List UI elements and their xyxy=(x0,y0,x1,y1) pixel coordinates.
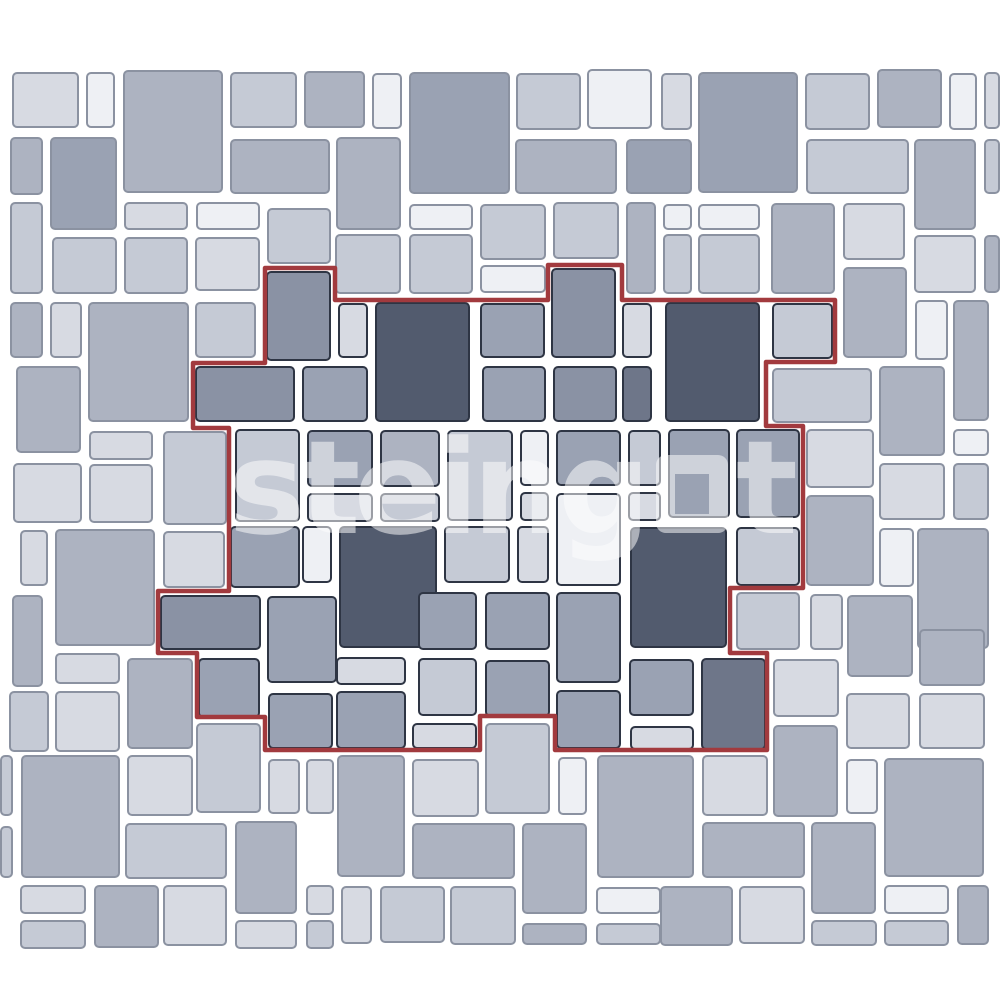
paver-tile xyxy=(338,303,368,358)
paver-tile xyxy=(846,759,878,814)
paver-tile xyxy=(622,366,652,422)
paver-tile xyxy=(163,431,227,525)
paver-tile xyxy=(372,73,402,129)
paver-tile xyxy=(160,595,261,650)
paver-tile xyxy=(50,302,82,358)
paver-tile xyxy=(553,202,619,259)
paver-tile xyxy=(843,267,907,358)
paver-tile xyxy=(124,202,188,230)
paver-tile xyxy=(884,885,949,914)
paver-tile xyxy=(626,202,656,294)
paver-tile xyxy=(949,73,977,130)
paver-tile xyxy=(806,495,874,586)
paver-tile xyxy=(773,659,839,717)
paver-tile xyxy=(94,885,159,948)
paver-tile xyxy=(195,237,260,291)
paver-tile xyxy=(736,527,800,586)
paver-tile xyxy=(418,658,477,716)
paver-tile xyxy=(447,430,513,521)
paver-tile xyxy=(235,821,297,914)
paver-tile xyxy=(485,592,550,650)
paver-tile xyxy=(302,526,332,583)
paver-tile xyxy=(772,368,872,423)
paver-tile xyxy=(163,531,225,588)
paver-tile xyxy=(50,137,117,230)
paver-tile xyxy=(884,920,949,946)
paver-tile xyxy=(698,234,760,294)
paver-tile xyxy=(198,658,260,718)
paver-tile xyxy=(268,759,300,814)
paver-tile xyxy=(235,920,297,949)
paver-tile xyxy=(306,920,334,949)
paver-tile xyxy=(482,366,546,422)
paver-tile xyxy=(412,823,515,879)
paver-tile xyxy=(127,658,193,749)
paver-tile xyxy=(879,528,914,587)
paver-tile xyxy=(409,234,473,294)
paver-tile xyxy=(20,530,48,586)
paver-tile xyxy=(336,691,406,749)
paver-tile xyxy=(266,271,331,361)
paver-tile xyxy=(811,920,877,946)
paver-tile xyxy=(556,592,621,683)
paver-tile xyxy=(409,204,473,230)
paver-tile xyxy=(663,234,692,294)
paver-tile xyxy=(12,72,79,128)
paver-tile xyxy=(739,886,805,944)
paver-tile xyxy=(10,137,43,195)
paver-tile xyxy=(553,366,617,422)
paver-tile xyxy=(306,759,334,814)
paver-tile xyxy=(702,822,805,878)
paver-tile xyxy=(953,429,989,456)
paver-tile xyxy=(984,139,1000,194)
paver-tile xyxy=(701,658,766,750)
paver-tile xyxy=(86,72,115,128)
paver-tile xyxy=(630,527,727,648)
paver-tile xyxy=(630,726,694,750)
paver-tile xyxy=(485,660,550,717)
paver-tile xyxy=(380,886,445,943)
paver-tile xyxy=(597,755,694,878)
paver-tile xyxy=(626,139,692,194)
paver-tile xyxy=(984,235,1000,293)
paver-tile xyxy=(551,268,616,358)
paver-tile xyxy=(522,823,587,914)
paver-tile xyxy=(805,73,870,130)
paver-tile xyxy=(879,366,945,456)
paver-tile xyxy=(773,725,838,817)
paver-tile xyxy=(914,139,976,230)
paver-tile xyxy=(21,755,120,878)
paver-tile xyxy=(515,139,617,194)
paver-tile xyxy=(846,693,910,749)
paver-tile xyxy=(661,73,692,130)
paver-tile xyxy=(195,366,295,422)
paver-tile xyxy=(665,302,760,422)
paver-tile xyxy=(772,303,833,359)
paver-tile xyxy=(89,464,153,523)
paver-tile xyxy=(10,302,43,358)
paver-tile xyxy=(556,430,621,486)
paver-tile xyxy=(127,755,193,816)
paver-tile xyxy=(736,429,800,518)
paver-tile xyxy=(516,73,581,130)
paver-tile xyxy=(52,237,117,294)
paver-tile xyxy=(480,303,545,358)
paver-tile xyxy=(13,463,82,523)
paver-tile xyxy=(55,529,155,646)
paver-tile xyxy=(337,755,405,877)
paver-tile xyxy=(702,755,768,816)
paver-tile xyxy=(380,493,440,522)
paver-tile xyxy=(12,595,43,687)
paving-pattern-image: steingt xyxy=(0,0,1000,1000)
paver-tile xyxy=(341,886,372,944)
paver-tile xyxy=(124,237,188,294)
paver-tile xyxy=(628,430,661,486)
paver-tile xyxy=(230,72,297,128)
paver-tile xyxy=(88,302,189,422)
paver-tile xyxy=(335,234,401,294)
paver-tile xyxy=(306,885,334,915)
paver-tile xyxy=(517,526,549,583)
paver-tile xyxy=(629,659,694,716)
paver-tile xyxy=(663,204,692,230)
paver-tile xyxy=(984,72,1000,129)
paver-tile xyxy=(919,629,985,686)
paver-tile xyxy=(0,826,13,878)
paver-tile xyxy=(336,657,406,685)
paver-tile xyxy=(307,430,373,487)
paver-tile xyxy=(919,693,985,749)
paver-tile xyxy=(698,72,798,193)
paver-tile xyxy=(622,303,652,358)
paver-tile xyxy=(957,885,989,945)
paver-tile xyxy=(843,203,905,260)
paver-tile xyxy=(877,69,942,128)
paver-tile xyxy=(811,822,876,914)
paver-tile xyxy=(450,886,516,945)
paver-tile xyxy=(884,758,984,877)
paver-tile xyxy=(123,70,223,193)
paver-tile xyxy=(915,300,948,360)
paver-tile xyxy=(953,463,989,520)
paver-tile xyxy=(307,493,373,522)
paver-tile xyxy=(879,463,945,520)
paver-tile xyxy=(914,235,976,293)
paver-tile xyxy=(558,757,587,815)
paver-tile xyxy=(267,596,337,683)
paver-tile xyxy=(375,302,470,422)
paver-tile xyxy=(9,691,49,752)
paver-tile xyxy=(736,592,800,650)
paver-tile xyxy=(522,923,587,945)
paver-tile xyxy=(418,592,477,650)
paver-tile xyxy=(195,302,256,358)
paver-tile xyxy=(668,429,730,518)
paver-tile xyxy=(268,693,333,749)
paver-tile xyxy=(810,594,843,650)
paver-tile xyxy=(16,366,81,453)
paver-tile xyxy=(556,690,621,749)
paver-tile xyxy=(520,430,549,486)
paver-tile xyxy=(163,885,227,946)
paver-tile xyxy=(806,429,874,488)
paver-tile xyxy=(196,202,260,230)
paver-tile xyxy=(485,723,550,814)
paver-tile xyxy=(520,492,549,521)
paver-tile xyxy=(304,71,365,128)
paver-tile xyxy=(953,300,989,421)
paver-tile xyxy=(336,137,401,230)
paver-tile xyxy=(412,759,479,817)
paver-tile xyxy=(230,139,330,194)
paver-tile xyxy=(380,430,440,487)
paver-tile xyxy=(628,492,661,521)
paver-tile xyxy=(556,493,621,586)
paver-tile xyxy=(235,429,300,522)
paver-tile xyxy=(698,204,760,230)
paver-tile xyxy=(230,526,300,588)
paver-tile xyxy=(847,595,913,677)
paver-tile xyxy=(587,69,652,129)
paver-tile xyxy=(771,203,835,294)
paver-tile xyxy=(55,653,120,684)
paver-tile xyxy=(10,202,43,294)
paver-tile xyxy=(480,265,546,293)
paver-tile xyxy=(444,526,510,583)
paver-tile xyxy=(20,920,86,949)
paver-tile xyxy=(596,887,661,914)
paver-tile xyxy=(196,723,261,813)
paver-tile xyxy=(302,366,368,422)
paver-tile xyxy=(480,204,546,260)
paver-tile xyxy=(0,755,13,816)
paver-tile xyxy=(409,72,510,194)
paver-tile xyxy=(89,431,153,460)
paver-tile xyxy=(55,691,120,752)
paver-tile xyxy=(806,139,909,194)
paver-tile xyxy=(20,885,86,914)
paver-tile xyxy=(412,723,477,749)
paver-tile xyxy=(267,208,331,264)
paver-tile xyxy=(660,886,733,946)
paver-tile xyxy=(596,923,661,945)
paver-tile xyxy=(125,823,227,879)
